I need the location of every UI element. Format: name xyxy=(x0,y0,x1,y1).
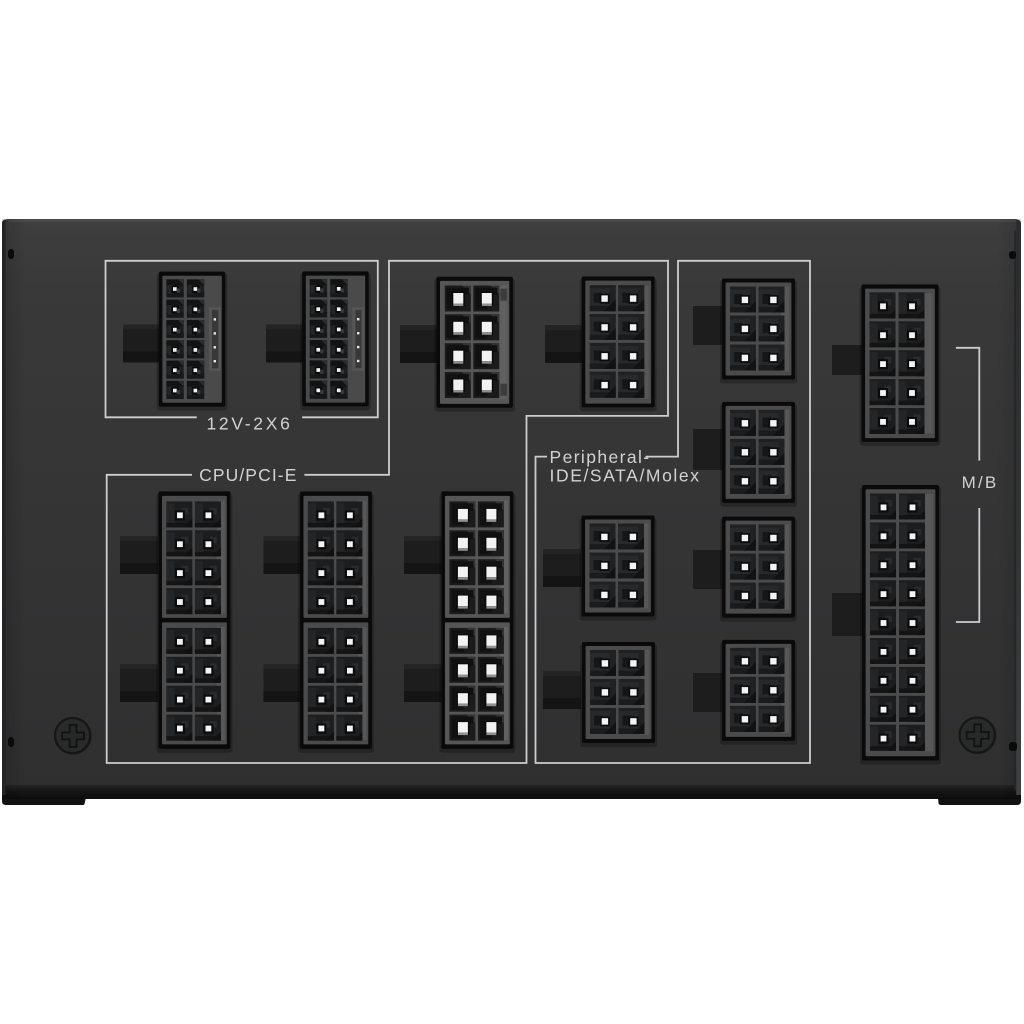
svg-text:12V-2X6: 12V-2X6 xyxy=(206,414,292,434)
svg-text:IDE/SATA/Molex: IDE/SATA/Molex xyxy=(550,466,701,486)
svg-text:M/B: M/B xyxy=(962,473,999,492)
svg-text:CPU/PCI-E: CPU/PCI-E xyxy=(199,465,297,485)
svg-text:Peripheral-: Peripheral- xyxy=(550,447,651,467)
